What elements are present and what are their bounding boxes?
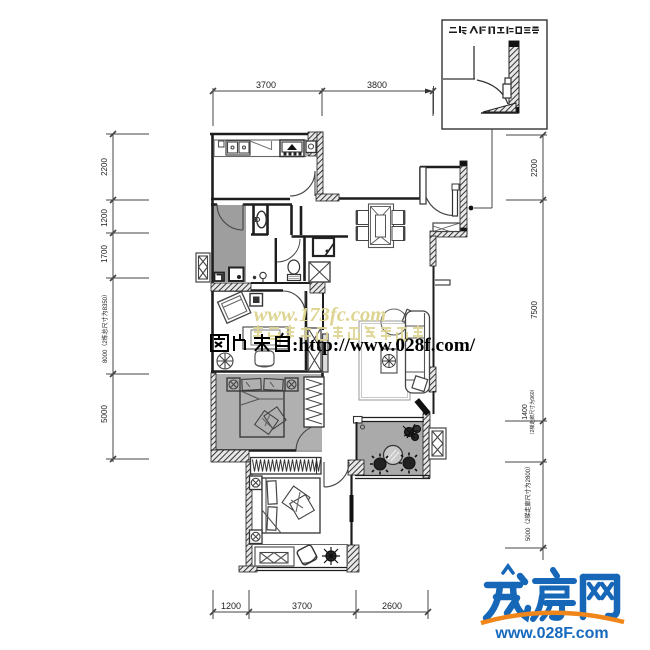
svg-text:1400: 1400 [522,404,529,420]
svg-text:（2梯走廊尺寸为960）: （2梯走廊尺寸为960） [529,386,536,437]
svg-text:7500: 7500 [530,301,539,319]
svg-text:3700: 3700 [256,80,276,90]
svg-text:3700: 3700 [292,601,312,611]
svg-text:2600: 2600 [382,601,402,611]
svg-text:www.028F.com: www.028F.com [494,625,608,642]
svg-text:1200: 1200 [100,209,109,227]
svg-text:8000（2栋总尺寸为8350）: 8000（2栋总尺寸为8350） [101,291,109,363]
svg-text:3800: 3800 [367,80,387,90]
svg-text::http://www.028f.com/: :http://www.028f.com/ [292,335,476,356]
svg-text:1200: 1200 [221,601,241,611]
svg-text:www.173fc.com: www.173fc.com [254,304,386,326]
svg-text:2200: 2200 [100,158,109,176]
svg-text:2200: 2200 [530,159,539,177]
svg-text:5000: 5000 [100,405,109,423]
svg-text:5000（2梯走廊尺寸为2800）: 5000（2梯走廊尺寸为2800） [524,463,532,541]
svg-text:1700: 1700 [100,245,109,263]
